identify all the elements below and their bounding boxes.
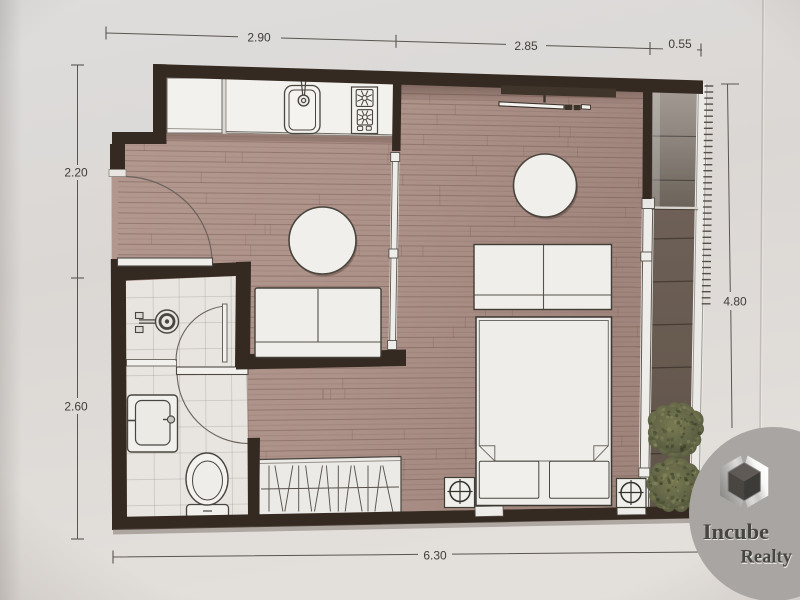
svg-text:2.20: 2.20 — [64, 166, 88, 180]
svg-text:2.85: 2.85 — [514, 39, 538, 53]
svg-text:Realty: Realty — [741, 548, 793, 568]
svg-text:6.30: 6.30 — [423, 549, 447, 563]
svg-text:0.55: 0.55 — [668, 37, 692, 51]
svg-text:2.60: 2.60 — [64, 400, 88, 414]
svg-text:4.80: 4.80 — [723, 295, 747, 309]
svg-text:2.90: 2.90 — [247, 31, 271, 45]
svg-text:Incube: Incube — [703, 519, 769, 544]
